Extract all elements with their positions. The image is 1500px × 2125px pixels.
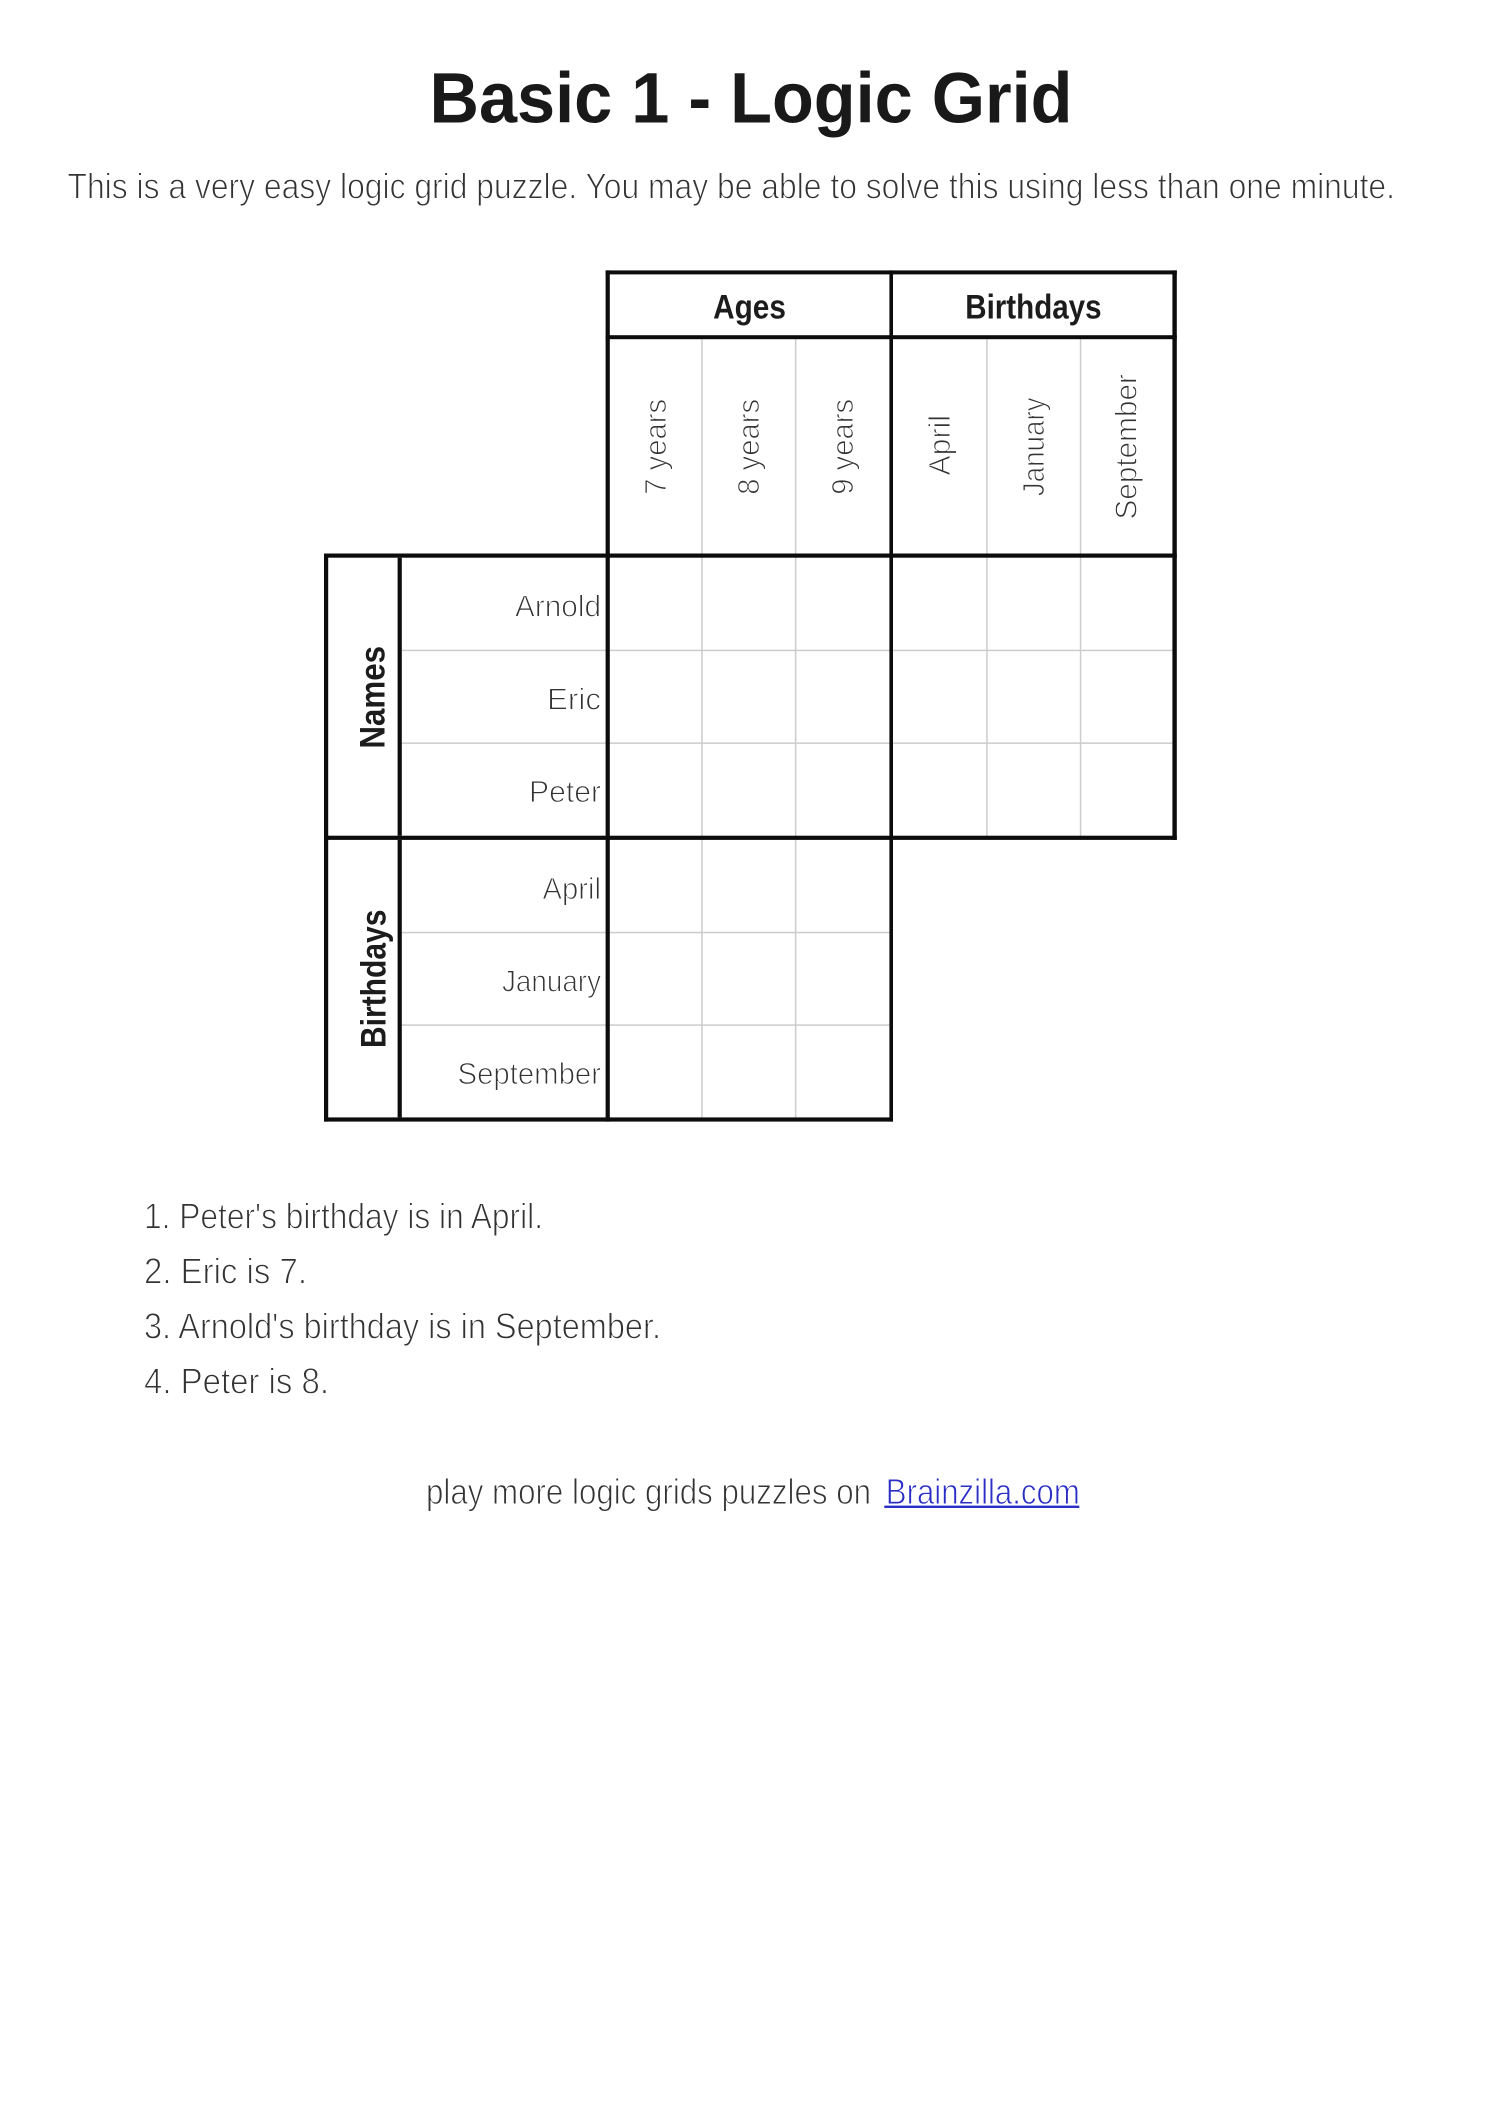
svg-text:September: September — [1109, 374, 1144, 520]
svg-text:January: January — [502, 963, 601, 998]
svg-text:This is a very easy logic grid: This is a very easy logic grid puzzle. Y… — [68, 165, 1396, 206]
svg-text:Peter: Peter — [529, 774, 601, 809]
svg-text:September: September — [458, 1056, 602, 1091]
svg-text:4. Peter is 8.: 4. Peter is 8. — [144, 1361, 329, 1402]
svg-text:Ages: Ages — [713, 289, 786, 327]
svg-text:Arnold: Arnold — [515, 589, 601, 624]
svg-text:Birthdays: Birthdays — [354, 910, 393, 1048]
svg-text:April: April — [543, 871, 602, 906]
svg-text:April: April — [922, 415, 957, 476]
svg-text:play more logic grids puzzles: play more logic grids puzzles on — [426, 1471, 871, 1512]
svg-text:9 years: 9 years — [825, 399, 860, 495]
svg-text:2. Eric is 7.: 2. Eric is 7. — [144, 1251, 307, 1292]
svg-text:Names: Names — [353, 646, 392, 749]
svg-text:Basic 1 - Logic Grid: Basic 1 - Logic Grid — [430, 59, 1073, 138]
svg-text:7 years: 7 years — [638, 399, 673, 495]
svg-text:Eric: Eric — [547, 681, 601, 716]
svg-text:January: January — [1016, 397, 1051, 496]
svg-text:Birthdays: Birthdays — [965, 289, 1101, 327]
svg-text:1. Peter's birthday is in Apri: 1. Peter's birthday is in April. — [144, 1196, 543, 1237]
svg-text:3. Arnold's birthday is in Sep: 3. Arnold's birthday is in September. — [144, 1306, 661, 1347]
svg-text:8 years: 8 years — [731, 399, 766, 495]
